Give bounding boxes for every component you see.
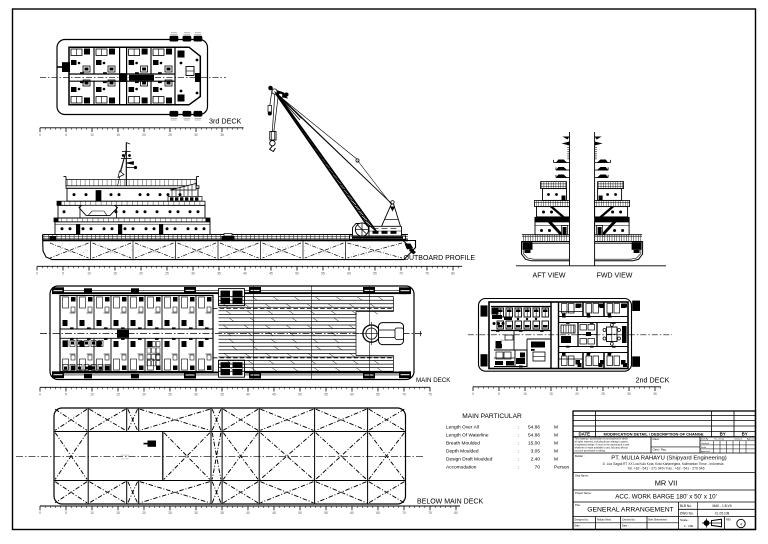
svg-text:Approved: Approved: [701, 450, 710, 453]
svg-text:Ship Name :: Ship Name :: [575, 474, 590, 478]
svg-text:30: 30: [194, 393, 198, 397]
svg-text:65: 65: [376, 511, 380, 515]
svg-text:Builder :: Builder :: [575, 454, 585, 458]
svg-text:PANTRY: PANTRY: [500, 339, 509, 342]
svg-text:Length Over All: Length Over All: [446, 424, 479, 430]
svg-text:Date :: Date :: [575, 525, 582, 528]
svg-text:10: 10: [90, 511, 94, 515]
svg-text::: :: [518, 449, 519, 454]
svg-text:25: 25: [165, 272, 169, 276]
svg-text:Project Name :: Project Name :: [575, 491, 592, 495]
svg-text:Best Shamsheed: Best Shamsheed: [649, 518, 668, 521]
svg-text:Approved: Approved: [747, 438, 756, 441]
svg-text:(P&S): (P&S): [194, 252, 200, 254]
svg-text:M: M: [554, 448, 558, 454]
svg-text:BY: BY: [742, 432, 748, 437]
svg-text:Riduan Word: Riduan Word: [597, 518, 612, 521]
svg-text:MAIN DECK: MAIN DECK: [416, 377, 451, 384]
svg-text:AFT VIEW: AFT VIEW: [533, 273, 566, 280]
svg-text:75: 75: [425, 272, 429, 276]
svg-text:60: 60: [350, 511, 354, 515]
svg-text:GENERAL ARRANGEMENT: GENERAL ARRANGEMENT: [587, 506, 674, 513]
svg-text:20: 20: [142, 511, 146, 515]
svg-text:30: 30: [194, 133, 198, 137]
svg-text:15: 15: [113, 272, 117, 276]
svg-text:80: 80: [451, 272, 455, 276]
svg-text:MR VII: MR VII: [655, 479, 678, 488]
svg-text:BY: BY: [720, 432, 726, 437]
svg-text:(P&S): (P&S): [109, 252, 115, 254]
svg-text:25: 25: [168, 393, 172, 397]
svg-text::: :: [518, 433, 519, 438]
svg-text:3.05: 3.05: [531, 448, 541, 454]
svg-text:5: 5: [65, 133, 67, 137]
svg-text:55: 55: [324, 393, 328, 397]
svg-text:PT. MULIA RAHAYU (Shipyard Eng: PT. MULIA RAHAYU (Shipyard Engineering): [611, 456, 726, 462]
svg-text:15: 15: [116, 511, 120, 515]
svg-text:Draft By: Draft By: [701, 438, 708, 441]
svg-text:M: M: [554, 440, 558, 446]
svg-text:2.40: 2.40: [531, 456, 541, 462]
svg-text:WBT: WBT: [238, 420, 243, 422]
svg-text:WBT: WBT: [69, 492, 74, 494]
svg-text:(P&S): (P&S): [372, 252, 378, 254]
svg-text:WBT: WBT: [285, 420, 290, 422]
svg-text:our prior permission in writin: our prior permission in writing.: [575, 449, 606, 452]
svg-text:45: 45: [272, 511, 276, 515]
svg-text:WBT: WBT: [285, 492, 290, 494]
svg-text:70: 70: [402, 393, 406, 397]
svg-text:35: 35: [220, 511, 224, 515]
svg-text:1 : 200: 1 : 200: [684, 524, 694, 528]
svg-text:Checked: Checked: [701, 443, 709, 445]
svg-text:15: 15: [116, 393, 120, 397]
svg-text:80: 80: [454, 511, 458, 515]
svg-text:No. of Drg.: No. of Drg.: [715, 439, 725, 441]
svg-text:70: 70: [402, 511, 406, 515]
svg-text:WBT: WBT: [238, 492, 243, 494]
svg-text:30: 30: [194, 511, 198, 515]
svg-text::: :: [518, 441, 519, 446]
svg-text:15: 15: [549, 392, 553, 396]
svg-text:Tel. +62 - 541 - 271 049 / F: Tel. +62 - 541 - 271 049 / Fax : +62 - 5…: [628, 467, 705, 471]
svg-text:40: 40: [246, 511, 250, 515]
svg-text:WBT: WBT: [384, 492, 389, 494]
svg-text:Scale: Scale: [701, 447, 707, 449]
svg-text:whatever or made available to: whatever or made available to any 3rd pa…: [575, 446, 629, 449]
svg-text:This drawing / specification i: This drawing / specification is our prop…: [575, 437, 629, 440]
svg-text:(P&S): (P&S): [236, 252, 242, 254]
svg-text:50: 50: [298, 511, 302, 515]
svg-text:10: 10: [87, 272, 91, 276]
svg-text:20: 20: [139, 272, 143, 276]
svg-text:DWG No.: DWG No.: [680, 512, 694, 516]
svg-text::: :: [518, 457, 519, 462]
svg-text:25: 25: [168, 133, 172, 137]
svg-text:MAIN PARTICULAR: MAIN PARTICULAR: [462, 413, 522, 420]
svg-text:ROOM: ROOM: [122, 459, 129, 461]
svg-text:Scale :: Scale :: [680, 518, 689, 522]
svg-text:CL 05.108: CL 05.108: [715, 512, 730, 516]
svg-text:20: 20: [142, 133, 146, 137]
svg-text:WBT: WBT: [69, 420, 74, 422]
svg-text:WBT: WBT: [339, 492, 344, 494]
svg-text:60: 60: [347, 272, 351, 276]
svg-text:Checked: Checked: [734, 439, 742, 441]
svg-text:50: 50: [295, 272, 299, 276]
svg-text:OUTBOARD PROFILE: OUTBOARD PROFILE: [404, 255, 476, 262]
svg-text:Accomodation: Accomodation: [446, 464, 477, 470]
svg-text:Class / Flag :: Class / Flag :: [653, 448, 668, 451]
svg-text:Client :: Client :: [653, 438, 661, 441]
svg-text:BLB No.: BLB No.: [680, 504, 692, 508]
svg-text:65: 65: [373, 272, 377, 276]
svg-text:(P&S): (P&S): [151, 252, 157, 254]
svg-text:25: 25: [601, 392, 605, 396]
svg-text:(P&S): (P&S): [279, 252, 285, 254]
svg-text:all rights reserved, includin: all rights reserved, including those rel…: [575, 440, 629, 443]
svg-text:M: M: [554, 424, 558, 430]
svg-text:WBT: WBT: [384, 420, 389, 422]
svg-text:WBT: WBT: [105, 492, 110, 494]
svg-text:Length Of Waterline: Length Of Waterline: [446, 432, 489, 438]
svg-text:M: M: [554, 456, 558, 462]
svg-text:55: 55: [321, 272, 325, 276]
svg-text:35: 35: [220, 393, 224, 397]
svg-text:60: 60: [350, 393, 354, 397]
svg-text:Designed by :: Designed by :: [575, 518, 590, 521]
svg-text:2nd DECK: 2nd DECK: [636, 376, 670, 385]
svg-text:35: 35: [653, 392, 657, 396]
svg-text:Checked by :: Checked by :: [622, 518, 636, 521]
svg-text:5: 5: [498, 392, 500, 396]
svg-text:DATE: DATE: [578, 432, 590, 437]
svg-text:70: 70: [535, 464, 541, 470]
svg-text:54.86: 54.86: [528, 432, 540, 438]
svg-text:0: 0: [39, 511, 41, 515]
svg-text:WBT: WBT: [105, 420, 110, 422]
svg-text:10: 10: [90, 133, 94, 137]
svg-text:5: 5: [65, 393, 67, 397]
svg-text:BELOW MAIN DECK: BELOW MAIN DECK: [417, 499, 483, 506]
svg-text:35: 35: [217, 272, 221, 276]
svg-text:40: 40: [243, 272, 247, 276]
svg-text:0: 0: [36, 272, 38, 276]
svg-text:10: 10: [523, 392, 527, 396]
svg-text:35: 35: [220, 133, 224, 137]
svg-text:(P&S): (P&S): [321, 252, 327, 254]
svg-text:3rd DECK: 3rd DECK: [209, 117, 242, 126]
svg-text:a registered design. It must: a registered design. It must not be repr…: [575, 443, 630, 446]
svg-text:75: 75: [428, 393, 432, 397]
svg-text:50: 50: [298, 393, 302, 397]
svg-text:30: 30: [627, 392, 631, 396]
svg-text:20: 20: [142, 393, 146, 397]
svg-text:0: 0: [39, 133, 41, 137]
svg-text:20: 20: [575, 392, 579, 396]
svg-text::: :: [518, 425, 519, 430]
svg-text:4: 4: [740, 522, 742, 526]
svg-text:Design Draft Moulded: Design Draft Moulded: [446, 456, 493, 462]
svg-text:0: 0: [39, 393, 41, 397]
svg-text:70: 70: [399, 272, 403, 276]
svg-text:54.86: 54.86: [528, 424, 540, 430]
svg-text:0: 0: [472, 392, 474, 396]
svg-text:ACC. WORK BARGE 180' x 50' x 1: ACC. WORK BARGE 180' x 50' x 10': [615, 494, 717, 501]
svg-text:55: 55: [324, 511, 328, 515]
svg-text:25: 25: [168, 511, 172, 515]
svg-text:15: 15: [116, 133, 120, 137]
svg-text:Title :: Title :: [575, 503, 582, 507]
svg-text::: :: [518, 465, 519, 470]
svg-text:65: 65: [376, 393, 380, 397]
svg-text:40: 40: [246, 393, 250, 397]
svg-text:10: 10: [90, 393, 94, 397]
svg-text:WBT: WBT: [339, 420, 344, 422]
svg-text:45: 45: [269, 272, 273, 276]
svg-text:Date :: Date :: [622, 525, 629, 528]
svg-text:Depth Moulded: Depth Moulded: [446, 448, 479, 454]
svg-text:WBT: WBT: [172, 420, 177, 422]
svg-text:Person: Person: [554, 464, 570, 470]
svg-text:M: M: [554, 432, 558, 438]
svg-text:Breath Moulded: Breath Moulded: [446, 440, 480, 446]
svg-text:(P&S): (P&S): [66, 252, 72, 254]
svg-text:WBT: WBT: [172, 492, 177, 494]
svg-text:MAV - 1.B.VII: MAV - 1.B.VII: [712, 504, 731, 508]
svg-text:FWD VIEW: FWD VIEW: [597, 273, 633, 280]
svg-text:5: 5: [65, 511, 67, 515]
svg-text:Jl. Loa Gagak RT XX Loa Kulu K: Jl. Loa Gagak RT XX Loa Kulu Kota, Kota …: [603, 462, 724, 466]
svg-text:75: 75: [428, 511, 432, 515]
svg-text:15.00: 15.00: [528, 440, 540, 446]
svg-text:45: 45: [272, 393, 276, 397]
svg-text:MODIFICATION DETAIL / DESCRI: MODIFICATION DETAIL / DESCRIPTION OF CHA…: [604, 432, 704, 437]
svg-text:30: 30: [191, 272, 195, 276]
svg-text:REV: REV: [726, 519, 731, 522]
svg-text:5: 5: [62, 272, 64, 276]
